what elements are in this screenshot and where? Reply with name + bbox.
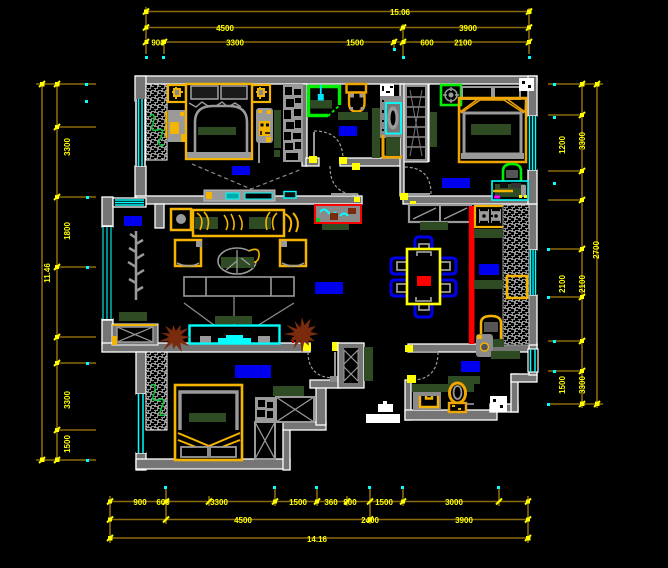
- svg-text:600: 600: [156, 498, 170, 507]
- svg-text:600: 600: [420, 39, 434, 48]
- svg-text:1500: 1500: [558, 376, 567, 394]
- svg-text:1500: 1500: [346, 39, 364, 48]
- svg-text:1800: 1800: [63, 222, 72, 240]
- svg-text:15.06: 15.06: [390, 8, 411, 17]
- svg-text:3300: 3300: [210, 498, 228, 507]
- svg-text:2100: 2100: [578, 275, 587, 293]
- svg-text:1500: 1500: [63, 435, 72, 453]
- svg-text:1500: 1500: [289, 498, 307, 507]
- svg-text:3000: 3000: [445, 498, 463, 507]
- svg-text:3300: 3300: [63, 391, 72, 409]
- svg-text:3300: 3300: [63, 138, 72, 156]
- svg-text:900: 900: [133, 498, 147, 507]
- svg-text:14.16: 14.16: [307, 535, 328, 544]
- svg-text:2700: 2700: [592, 241, 601, 259]
- svg-text:3900: 3900: [455, 516, 473, 525]
- svg-text:3300: 3300: [578, 376, 587, 394]
- svg-text:900: 900: [343, 498, 357, 507]
- svg-text:3900: 3900: [459, 24, 477, 33]
- svg-text:2100: 2100: [558, 275, 567, 293]
- svg-text:3300: 3300: [578, 132, 587, 150]
- svg-text:3300: 3300: [226, 39, 244, 48]
- svg-text:4500: 4500: [234, 516, 252, 525]
- svg-text:1500: 1500: [375, 498, 393, 507]
- svg-text:360: 360: [324, 498, 338, 507]
- svg-text:11.46: 11.46: [43, 263, 52, 283]
- svg-text:1200: 1200: [558, 136, 567, 154]
- svg-text:4500: 4500: [216, 24, 234, 33]
- svg-text:2100: 2100: [454, 39, 472, 48]
